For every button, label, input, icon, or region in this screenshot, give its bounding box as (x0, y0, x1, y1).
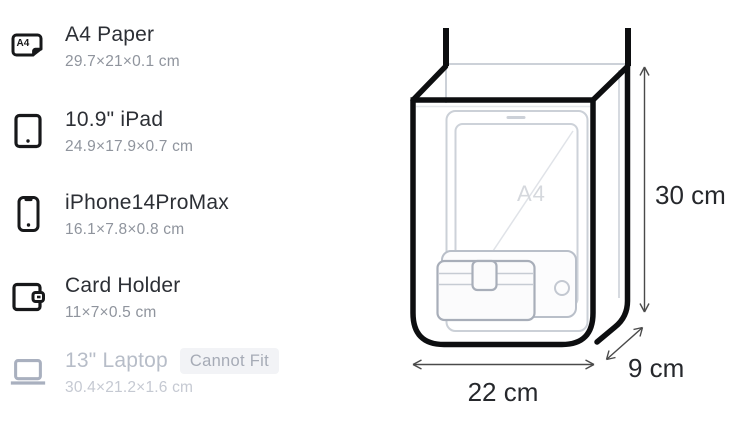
bag-item-card-holder (438, 261, 535, 320)
item-name: iPhone14ProMax (65, 190, 229, 216)
item-dimensions: 16.1×7.8×0.8 cm (65, 220, 229, 239)
item-dimensions: 11×7×0.5 cm (65, 303, 180, 322)
item-name: 13" Laptop (65, 348, 168, 374)
list-item-a4-paper[interactable]: A4 A4 Paper 29.7×21×0.1 cm (8, 17, 180, 75)
a4-paper-icon: A4 (8, 30, 48, 63)
bag-wireframe-svg: A4 (390, 0, 750, 426)
bag-diagram: A4 (390, 0, 750, 426)
item-dimensions: 24.9×17.9×0.7 cm (65, 137, 193, 156)
list-item-iphone[interactable]: iPhone14ProMax 16.1×7.8×0.8 cm (8, 185, 229, 243)
bag-capacity-widget: { "items": [ {"name": "A4 Paper", "dimen… (0, 0, 750, 426)
item-list: A4 A4 Paper 29.7×21×0.1 cm 10.9" iPad 24… (8, 0, 338, 426)
list-item-card-holder[interactable]: Card Holder 11×7×0.5 cm (8, 268, 180, 326)
item-name: A4 Paper (65, 22, 180, 48)
item-name: 10.9" iPad (65, 107, 193, 133)
item-name: Card Holder (65, 273, 180, 299)
list-item-ipad[interactable]: 10.9" iPad 24.9×17.9×0.7 cm (8, 102, 193, 160)
item-dimensions: 30.4×21.2×1.6 cm (65, 378, 279, 397)
bag-item-a4-label: A4 (517, 181, 546, 206)
item-dimensions: 29.7×21×0.1 cm (65, 52, 180, 71)
cannot-fit-badge: Cannot Fit (180, 348, 279, 374)
width-label: 22 cm (468, 377, 539, 407)
card-holder-icon (8, 280, 48, 314)
ipad-icon (8, 112, 48, 150)
svg-text:A4: A4 (17, 38, 30, 49)
laptop-icon (8, 356, 48, 388)
depth-label: 9 cm (628, 353, 684, 383)
iphone-icon (8, 194, 48, 234)
list-item-laptop[interactable]: 13" Laptop Cannot Fit 30.4×21.2×1.6 cm (8, 343, 279, 401)
height-label: 30 cm (655, 180, 726, 210)
